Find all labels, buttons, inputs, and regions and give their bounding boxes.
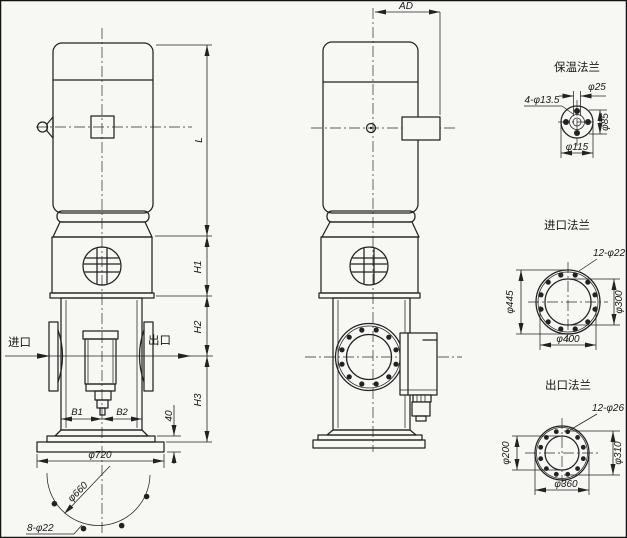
dim-phi720: φ720 (88, 450, 112, 461)
dim-phi445: φ445 (505, 290, 516, 314)
fitting-nut (413, 395, 431, 402)
fitting-body (412, 402, 430, 416)
inlet-flange-title: 进口法兰 (544, 218, 590, 232)
dim-12-phi26: 12-φ26 (592, 403, 625, 414)
dim-40: 40 (164, 410, 175, 422)
dim-AD: AD (398, 1, 413, 12)
dim-H2: H2 (193, 320, 204, 333)
dim-phi25: φ25 (588, 82, 606, 93)
dim-phi200: φ200 (501, 441, 512, 465)
engineering-drawing-page: 进口 出口 L H1 H2 H3 40 (0, 0, 627, 538)
dim-phi400: φ400 (556, 334, 580, 345)
dim-4-phi13_5: 4-φ13.5 (525, 95, 560, 106)
dim-phi360: φ360 (554, 479, 578, 490)
dim-B2: B2 (116, 407, 128, 418)
dim-12-phi22: 12-φ22 (593, 248, 626, 259)
inlet-label: 进口 (8, 336, 31, 349)
side-terminal-box (402, 117, 440, 140)
outlet-flange-title: 出口法兰 (545, 378, 591, 392)
insulation-flange-title: 保温法兰 (554, 60, 600, 74)
dim-B1: B1 (71, 407, 83, 418)
dim-anchor-holes: 8-φ22 (27, 523, 54, 534)
dim-H1: H1 (193, 261, 204, 274)
dim-H3: H3 (193, 393, 204, 406)
dim-phi300: φ300 (614, 290, 625, 314)
dim-phi310: φ310 (613, 441, 624, 465)
dim-phi85: φ85 (600, 113, 611, 131)
dim-phi115: φ115 (566, 142, 589, 153)
dim-L: L (194, 137, 205, 143)
outlet-label: 出口 (148, 333, 171, 347)
pump-assembly-drawing: 进口 出口 L H1 H2 H3 40 (0, 0, 627, 538)
